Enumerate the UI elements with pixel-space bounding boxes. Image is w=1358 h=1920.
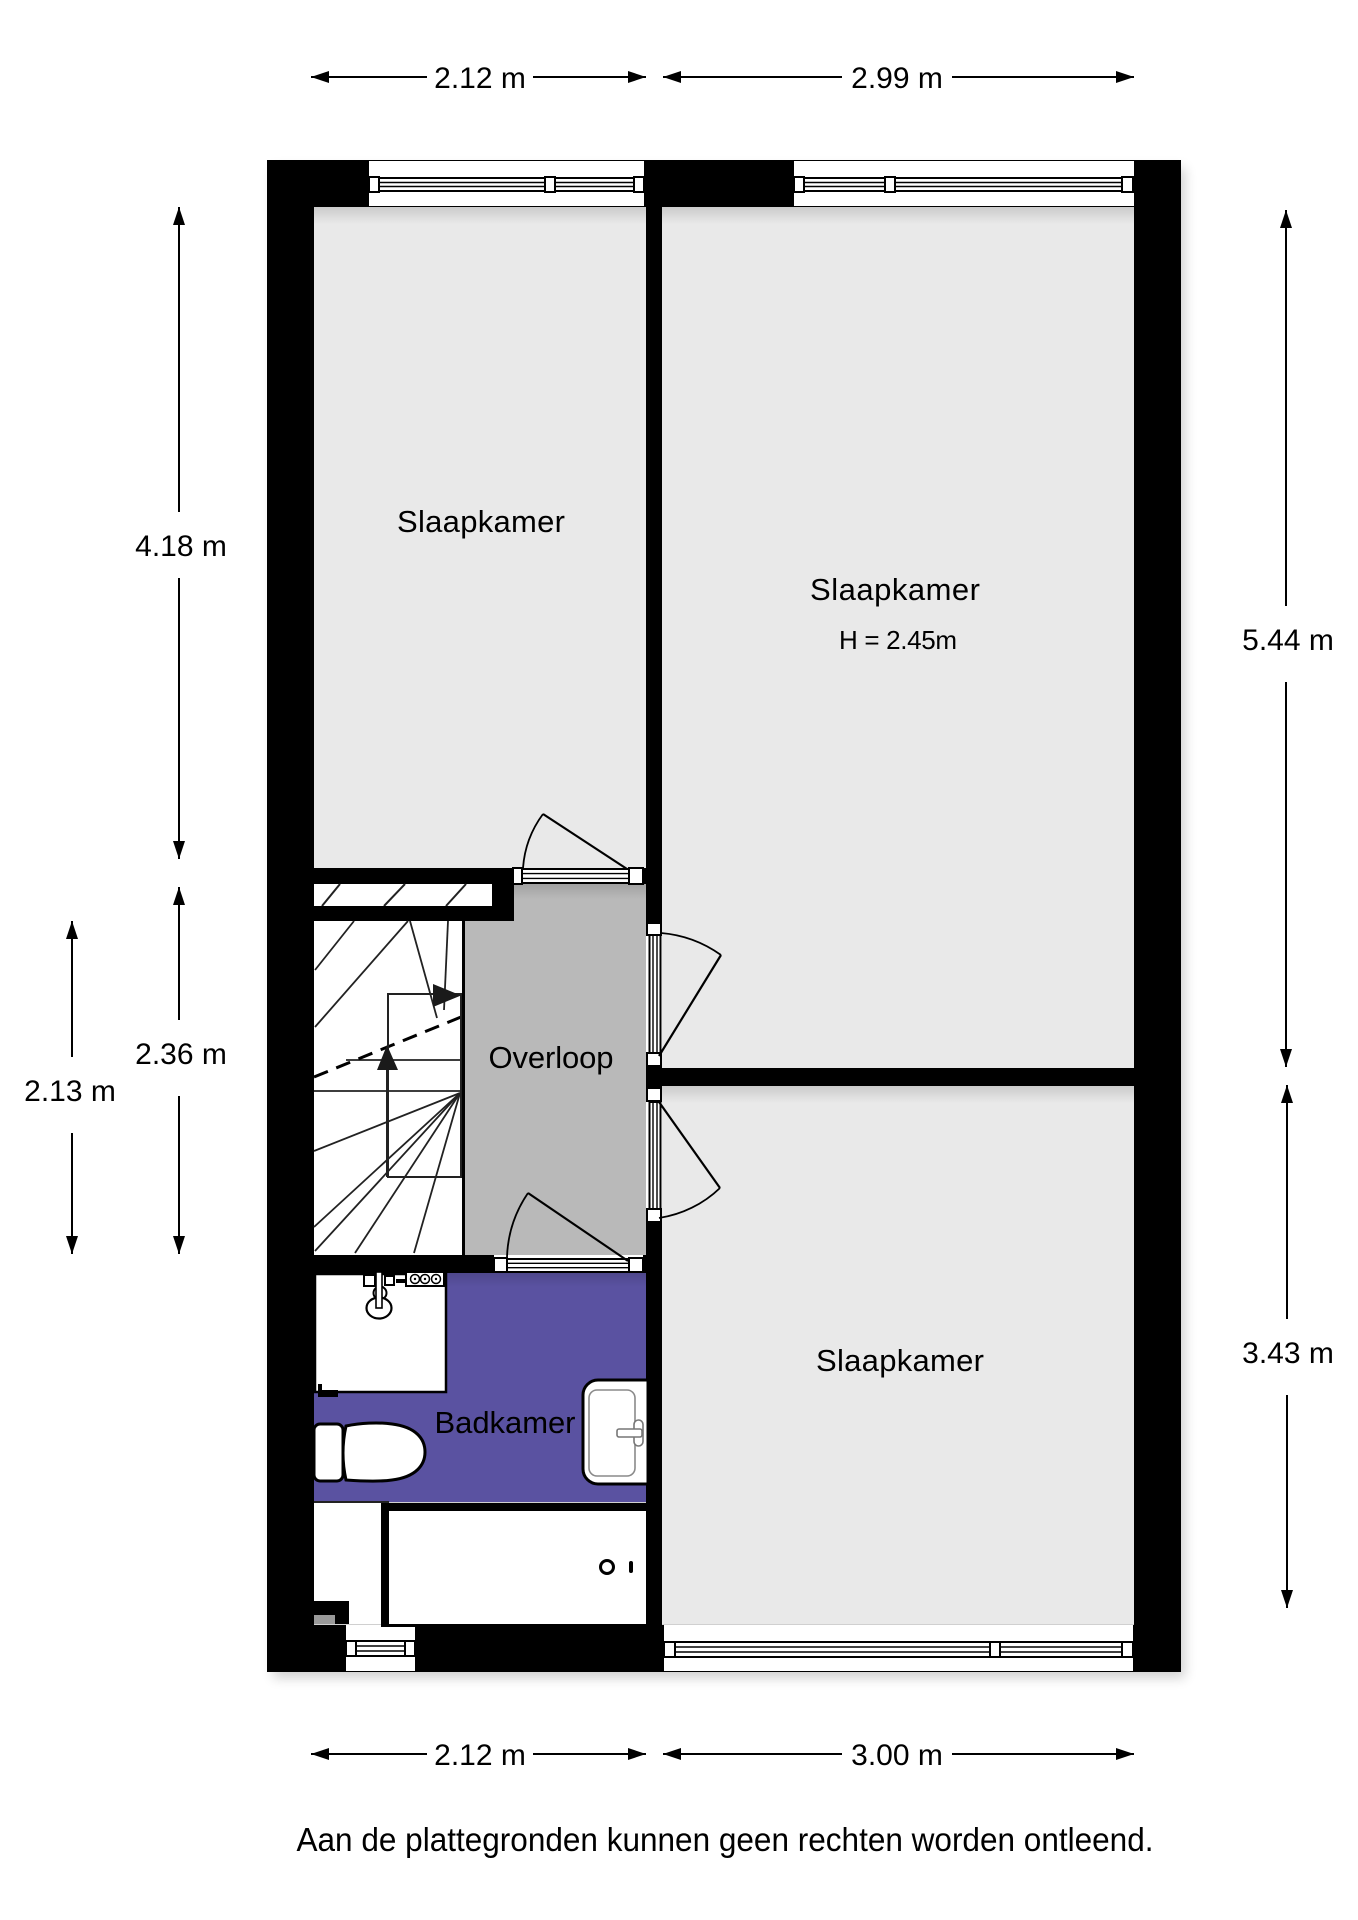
svg-text:3.00 m: 3.00 m	[851, 1739, 943, 1772]
svg-text:Aan de plattegronden kunnen ge: Aan de plattegronden kunnen geen rechten…	[297, 1821, 1154, 1858]
svg-text:Slaapkamer: Slaapkamer	[816, 1343, 984, 1378]
svg-text:5.44 m: 5.44 m	[1242, 624, 1334, 657]
svg-text:2.13 m: 2.13 m	[24, 1075, 116, 1108]
svg-text:2.99 m: 2.99 m	[851, 62, 943, 95]
svg-text:3.43 m: 3.43 m	[1242, 1337, 1334, 1370]
svg-text:Overloop: Overloop	[489, 1040, 614, 1075]
svg-text:4.18 m: 4.18 m	[135, 530, 227, 563]
svg-text:Badkamer: Badkamer	[435, 1405, 576, 1440]
svg-text:2.36 m: 2.36 m	[135, 1038, 227, 1071]
svg-text:2.12 m: 2.12 m	[434, 1739, 526, 1772]
svg-text:2.12 m: 2.12 m	[434, 62, 526, 95]
svg-text:Slaapkamer: Slaapkamer	[810, 572, 980, 607]
svg-text:Slaapkamer: Slaapkamer	[397, 504, 565, 539]
svg-text:H = 2.45m: H = 2.45m	[839, 625, 957, 655]
